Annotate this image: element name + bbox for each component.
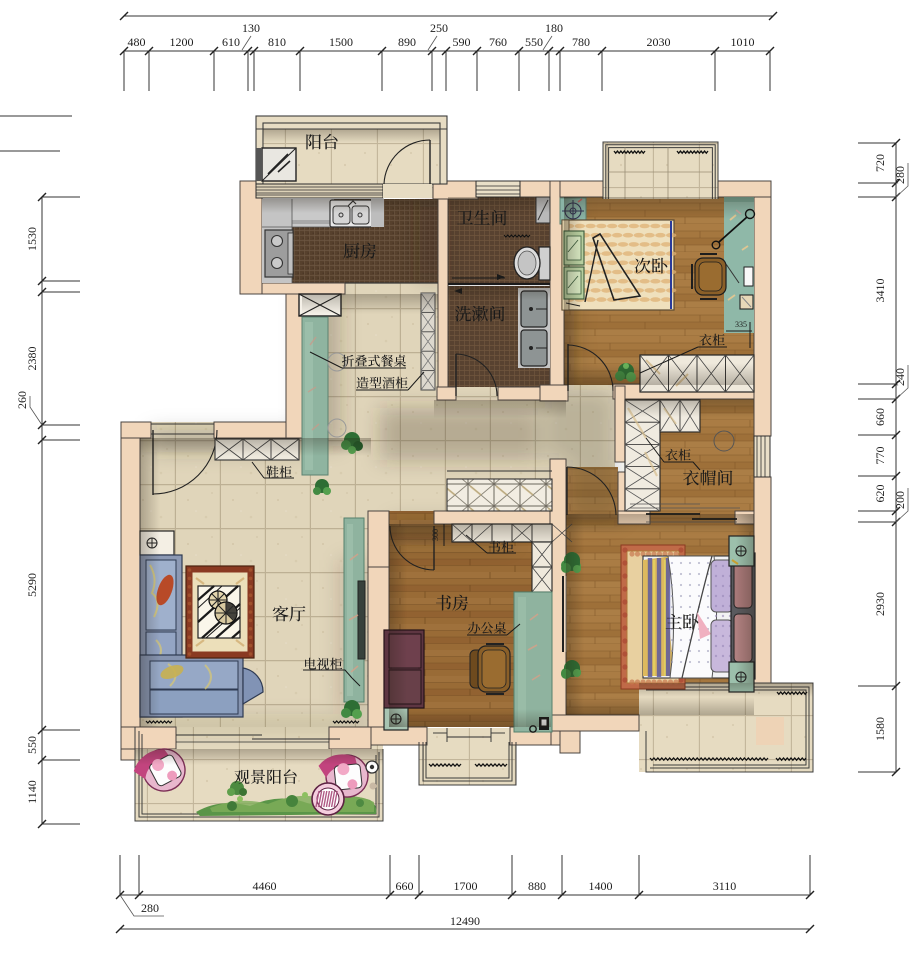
svg-text:590: 590 [453, 35, 471, 49]
svg-text:880: 880 [528, 879, 546, 893]
svg-text:2930: 2930 [873, 592, 887, 616]
svg-text:4460: 4460 [253, 879, 277, 893]
svg-text:200: 200 [893, 491, 907, 509]
svg-text:1140: 1140 [25, 780, 39, 804]
svg-text:260: 260 [15, 391, 29, 409]
svg-text:1700: 1700 [454, 879, 478, 893]
svg-text:890: 890 [398, 35, 416, 49]
svg-text:780: 780 [572, 35, 590, 49]
svg-text:610: 610 [222, 35, 240, 49]
svg-text:12490: 12490 [450, 914, 480, 928]
svg-text:280: 280 [893, 166, 907, 184]
svg-text:250: 250 [430, 21, 448, 35]
svg-text:620: 620 [873, 485, 887, 503]
svg-text:550: 550 [25, 736, 39, 754]
svg-text:480: 480 [128, 35, 146, 49]
svg-text:180: 180 [545, 21, 563, 35]
svg-text:1530: 1530 [25, 227, 39, 251]
svg-text:1010: 1010 [731, 35, 755, 49]
svg-text:720: 720 [873, 154, 887, 172]
svg-text:280: 280 [141, 901, 159, 915]
svg-text:3410: 3410 [873, 279, 887, 303]
svg-text:5290: 5290 [25, 573, 39, 597]
svg-text:240: 240 [893, 368, 907, 386]
svg-text:1500: 1500 [329, 35, 353, 49]
svg-text:810: 810 [268, 35, 286, 49]
svg-text:130: 130 [242, 21, 260, 35]
svg-text:1580: 1580 [873, 717, 887, 741]
svg-text:2380: 2380 [25, 347, 39, 371]
svg-text:1400: 1400 [589, 879, 613, 893]
svg-text:550: 550 [525, 35, 543, 49]
svg-text:3110: 3110 [713, 879, 737, 893]
svg-text:770: 770 [873, 447, 887, 465]
svg-text:2030: 2030 [647, 35, 671, 49]
svg-text:335: 335 [735, 320, 747, 329]
svg-text:300: 300 [431, 529, 440, 541]
svg-text:1200: 1200 [170, 35, 194, 49]
svg-text:660: 660 [873, 408, 887, 426]
svg-text:660: 660 [396, 879, 414, 893]
svg-text:760: 760 [489, 35, 507, 49]
